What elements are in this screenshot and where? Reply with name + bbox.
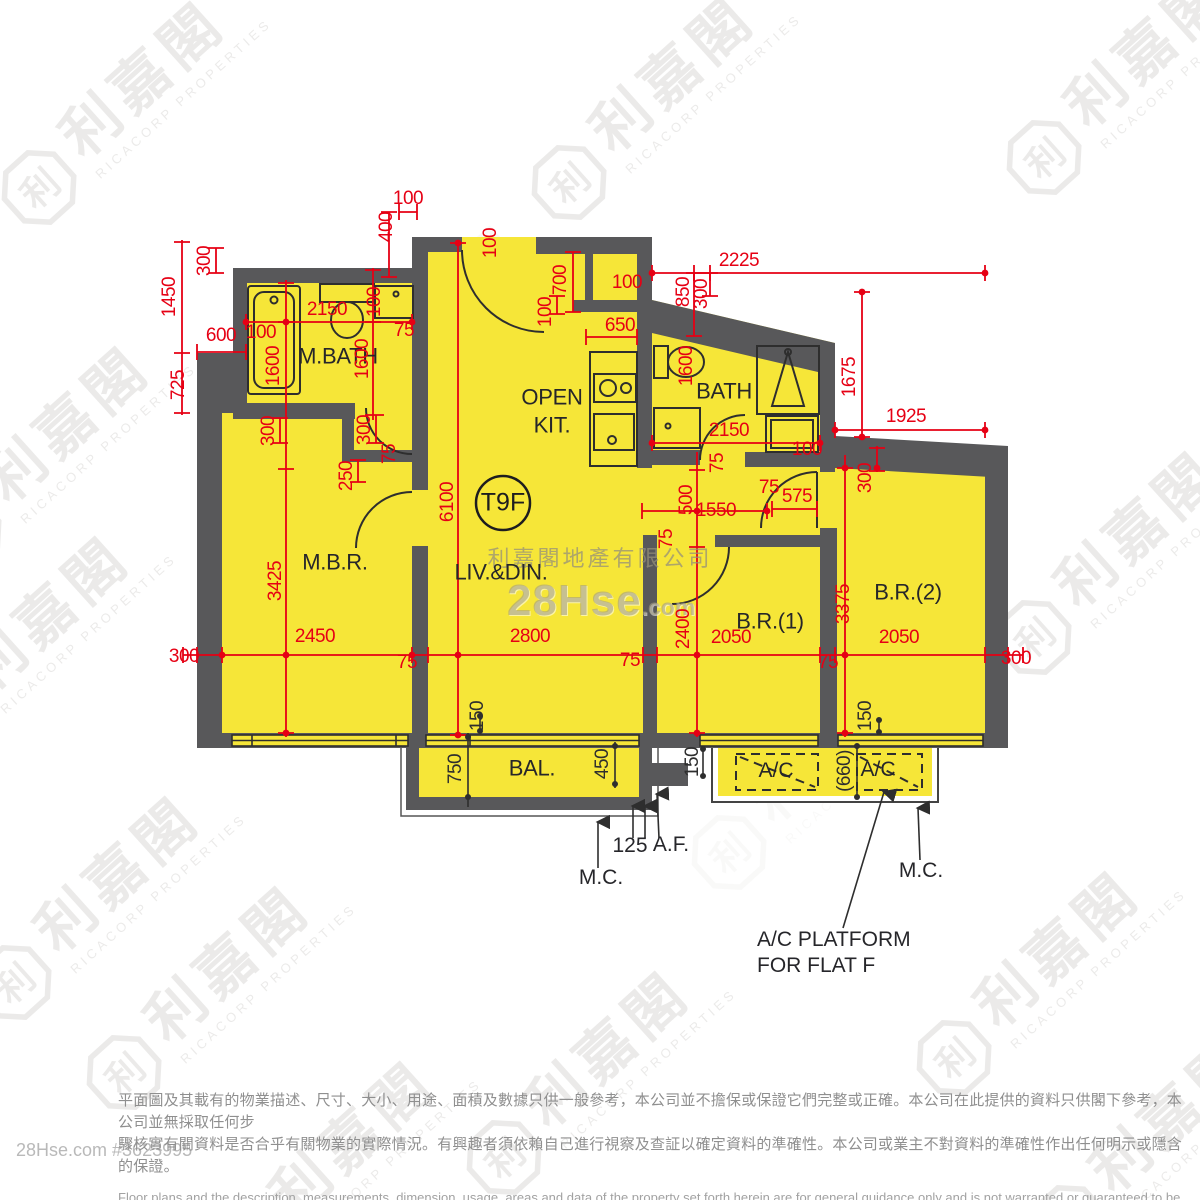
watermark-company-name: 利嘉閣地產有限公司 [487, 541, 712, 573]
room-fill [197, 237, 1008, 816]
watermark-site-suffix: .com [641, 594, 695, 620]
watermark-site-bold: 28Hse [507, 576, 642, 625]
watermark-site-name: 28Hse.com [507, 576, 695, 626]
disclaimer-en-line1: Floor plans and the description, measure… [118, 1188, 1196, 1200]
disclaimer-zh-line1: 平面圖及其載有的物業描述、尺寸、大小、用途、面積及數據只供一般參考，本公司並不擔… [118, 1090, 1196, 1134]
floorplan-page: 利利嘉閣RICACORP PROPERTIES利利嘉閣RICACORP PROP… [0, 0, 1200, 1200]
disclaimer-zh-line2: 驟核實有關資料是否合乎有關物業的實際情況。有興趣者須依賴自己進行視察及查証以確定… [118, 1134, 1196, 1178]
disclaimer-en: Floor plans and the description, measure… [118, 1188, 1196, 1200]
disclaimer: 平面圖及其載有的物業描述、尺寸、大小、用途、面積及數據只供一般參考，本公司並不擔… [118, 1090, 1196, 1200]
windows [232, 735, 983, 746]
